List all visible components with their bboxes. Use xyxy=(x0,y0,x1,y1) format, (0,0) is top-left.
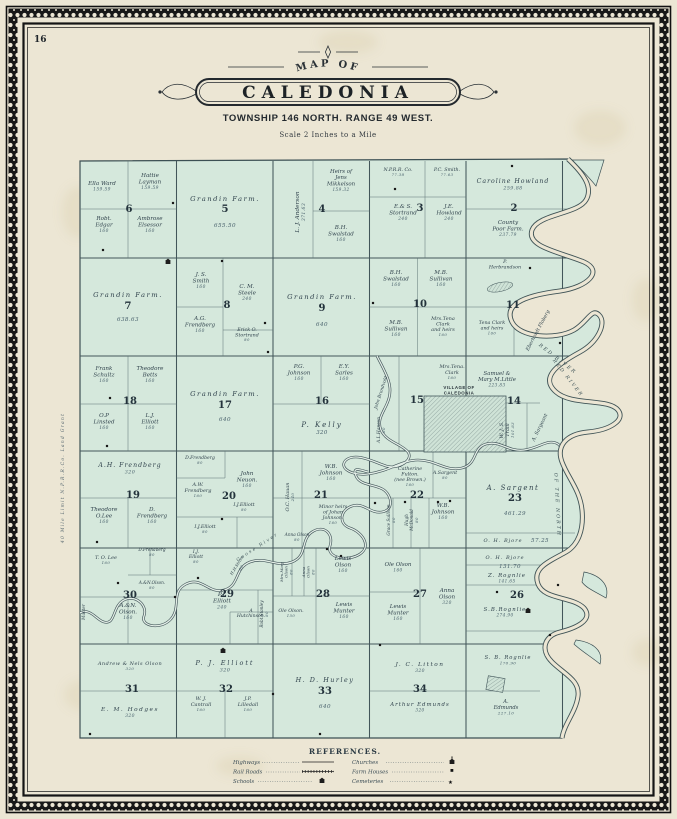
title-township: TOWNSHIP 146 NORTH. RANGE 49 WEST. xyxy=(223,113,434,124)
farm-house-dot xyxy=(340,555,342,557)
farm-house-dot xyxy=(449,500,451,502)
parcel-label: Munter xyxy=(81,603,86,621)
parcel-label: O. H. Bjore xyxy=(483,538,522,544)
land-patch xyxy=(582,572,607,598)
farm-house-dot xyxy=(511,165,513,167)
title-name: CALEDONIA xyxy=(242,83,414,103)
section-number: 26 xyxy=(510,590,524,601)
farm-house-dot xyxy=(172,202,174,204)
references-legend: REFERENCES. Highways Rail Roads Schools … xyxy=(232,747,455,786)
farm-house-dot xyxy=(197,577,199,579)
section-number: 9 xyxy=(319,303,326,314)
parcel-label: 640 xyxy=(316,322,328,328)
legend-label-cemeteries: Cemeteries xyxy=(352,779,383,785)
section-number: 27 xyxy=(413,589,427,600)
page-number: 16 xyxy=(34,35,47,45)
farm-house-dot xyxy=(174,596,176,598)
farm-house-dot xyxy=(221,518,223,520)
parcel-label: 461.29 xyxy=(503,511,526,517)
parcel-label: 57.25 xyxy=(531,538,549,544)
farm-house-dot xyxy=(559,342,561,344)
section-number: 5 xyxy=(222,204,229,215)
farm-house-dot xyxy=(102,249,104,251)
section-number: 14 xyxy=(507,396,521,407)
township-map: Ella Ward159.59HattieLayman159.59Robt.Ed… xyxy=(60,159,640,738)
legend-label-churches: Churches xyxy=(352,760,378,766)
farm-house-dot xyxy=(272,693,274,695)
section-number: 16 xyxy=(315,396,329,407)
farm-house-dot xyxy=(437,501,439,503)
section-number: 29 xyxy=(220,589,234,600)
section-number: 8 xyxy=(224,300,231,311)
parcel-label: Grandin Farm. xyxy=(190,195,260,203)
atlas-page: 16 MAP OF CALEDONIA TOWNSHIP 146 NORTH. … xyxy=(0,0,677,819)
section-number: 33 xyxy=(318,686,332,697)
church-icon xyxy=(449,756,455,764)
legend-label-highways: Highways xyxy=(232,760,260,766)
farm-house-icon xyxy=(451,769,454,772)
section-number: 28 xyxy=(316,589,330,600)
section-number: 4 xyxy=(319,204,326,215)
farm-house-dot xyxy=(372,302,374,304)
plat-map-svg: 16 MAP OF CALEDONIA TOWNSHIP 146 NORTH. … xyxy=(0,0,677,819)
section-number: 30 xyxy=(123,590,137,601)
farm-house-dot xyxy=(89,733,91,735)
section-number: 17 xyxy=(218,400,232,411)
parcel-label: 640 xyxy=(319,704,331,710)
parcel-label: VILLAGE OFCALEDONIA xyxy=(443,385,474,395)
farm-house-dot xyxy=(404,501,406,503)
farm-house-dot xyxy=(549,634,551,636)
farm-house-dot xyxy=(529,267,531,269)
section-number: 32 xyxy=(219,684,233,695)
legend-label-schools: Schools xyxy=(233,779,254,785)
farm-house-dot xyxy=(557,584,559,586)
farm-house-dot xyxy=(394,188,396,190)
parcel-label: Grandin Farm. xyxy=(190,390,260,398)
section-number: 10 xyxy=(413,299,427,310)
parcel-label: Grandin Farm. xyxy=(93,291,163,299)
parcel-label: 640 xyxy=(219,417,231,423)
section-number: 31 xyxy=(125,684,139,695)
parcel-label: W. J. S.Traill101.83 xyxy=(499,421,515,438)
parcel-label: H. D. Hurley xyxy=(295,676,355,684)
school-icon xyxy=(319,778,325,783)
cemetery-plot xyxy=(486,676,505,693)
farm-house-dot xyxy=(326,548,328,550)
farm-house-dot xyxy=(267,351,269,353)
farm-house-dot xyxy=(379,644,381,646)
farm-house-dot xyxy=(106,445,108,447)
parcel-label: HattieLayman159.59 xyxy=(138,173,162,191)
title-scale: Scale 2 Inches to a Mile xyxy=(279,131,376,139)
section-number: 15 xyxy=(410,395,424,406)
farm-house-dot xyxy=(117,582,119,584)
section-number: 3 xyxy=(417,203,424,214)
farm-house-dot xyxy=(496,591,498,593)
land-patch xyxy=(574,640,601,664)
farm-house-dot xyxy=(109,397,111,399)
farm-house-dot xyxy=(96,541,98,543)
section-number: 23 xyxy=(508,493,522,504)
title-cartouche: MAP OF CALEDONIA TOWNSHIP 146 NORTH. RAN… xyxy=(158,46,497,139)
farm-house-dot xyxy=(319,733,321,735)
section-number: 22 xyxy=(410,490,424,501)
parcel-label: 638.63 xyxy=(117,317,139,323)
section-number: 6 xyxy=(126,204,133,215)
parcel-label: 40 Mile Limit N.P.R.R.Co. Land Grant xyxy=(60,413,66,544)
farm-house-dot xyxy=(264,322,266,324)
title-map-of: MAP OF xyxy=(295,58,362,74)
section-number: 34 xyxy=(413,684,427,695)
section-number: 19 xyxy=(126,490,140,501)
section-number: 2 xyxy=(511,203,518,214)
farm-house-dot xyxy=(221,260,223,262)
legend-title: REFERENCES. xyxy=(309,747,381,756)
parcel-label: 655.50 xyxy=(214,223,236,229)
parcel-label: Grandin Farm. xyxy=(287,293,357,301)
parcel-label: 131.70 xyxy=(499,564,521,570)
section-number: 18 xyxy=(123,396,137,407)
section-number: 20 xyxy=(222,491,236,502)
farm-house-dot xyxy=(374,502,376,504)
parcel-label: A. Sargent xyxy=(486,484,540,492)
legend-label-farmhouses: Farm Houses xyxy=(351,770,388,776)
legend-label-railroads: Rail Roads xyxy=(232,770,263,776)
section-number: 21 xyxy=(314,490,328,501)
parcel-label: O. H. Bjore xyxy=(485,555,524,561)
cemetery-icon: ★ xyxy=(448,779,453,786)
section-number: 11 xyxy=(506,300,520,311)
section-number: 7 xyxy=(125,301,132,312)
